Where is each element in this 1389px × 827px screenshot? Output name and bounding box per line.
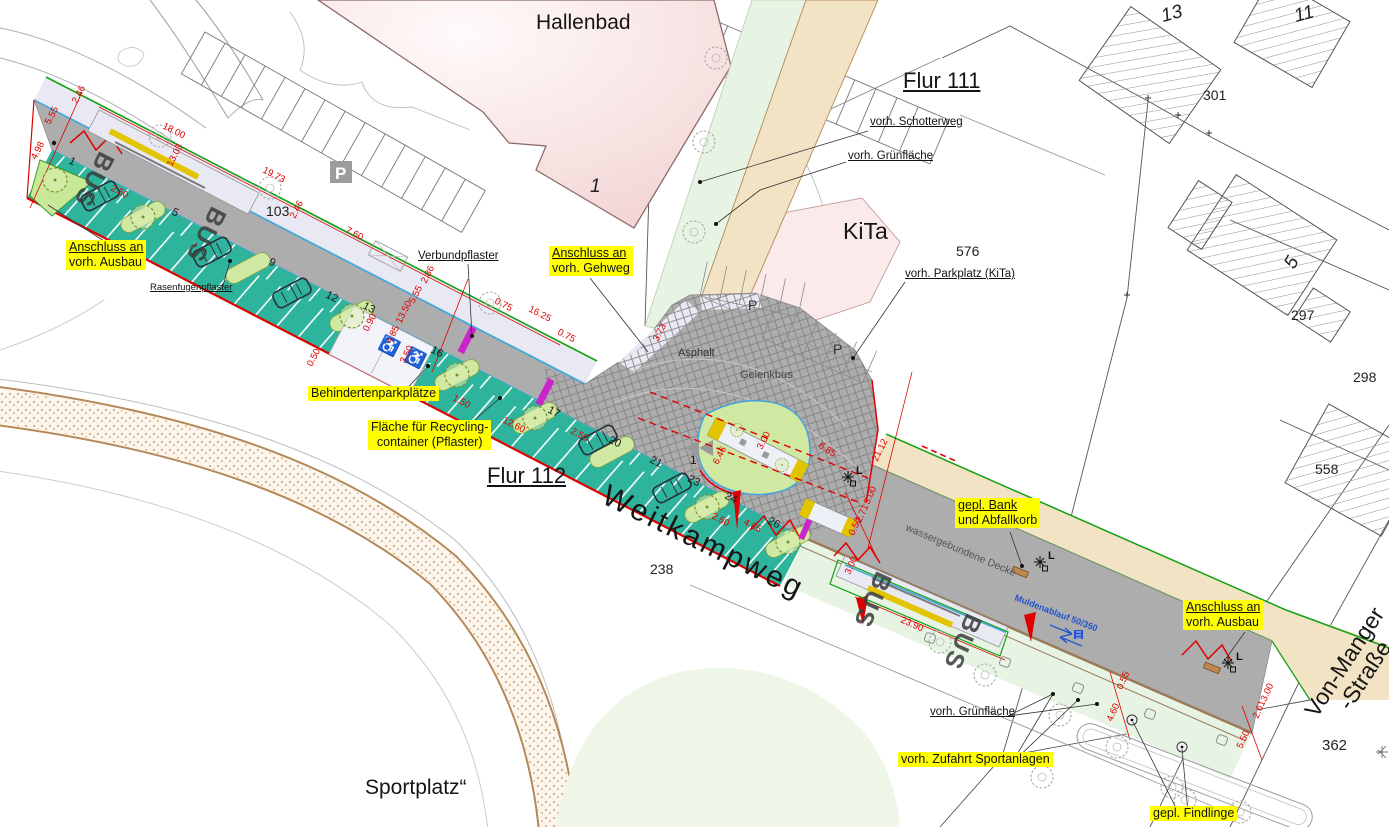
area-label-hallenbad: Hallenbad — [536, 10, 631, 35]
parcel-558: 558 — [1315, 461, 1338, 478]
parcel-103: 103 — [266, 203, 289, 220]
parking-letter: P — [833, 341, 842, 357]
site-plan: ♿ ♿ — [0, 0, 1389, 827]
area-label-kita: KiTa — [843, 218, 888, 246]
dimension: 16.25 — [527, 304, 553, 325]
callout-behindertenparkplaetze: Behindertenparkplätze — [308, 386, 439, 401]
parcel-298: 298 — [1353, 369, 1376, 386]
lamp-letter: L — [856, 465, 863, 477]
parcel-301: 301 — [1203, 87, 1226, 104]
callout-anschluss-ausbau-right: Anschluss an vorh. Ausbau — [1183, 600, 1263, 630]
parcel-297: 297 — [1291, 307, 1314, 324]
house-number: 1 — [590, 176, 601, 197]
callout-anschluss-gehweg: Anschluss an vorh. Gehweg — [549, 246, 633, 276]
island-sign-number: 1 — [690, 453, 697, 467]
note-gruenflaeche-sued: vorh. Grünfläche — [930, 706, 1015, 720]
flur-111-label: Flur 111 — [903, 68, 980, 94]
surface-label-asphalt: Asphalt — [678, 347, 715, 359]
dimension: 4.98 — [29, 140, 47, 161]
callout-anschluss-ausbau-left: Anschluss an vorh. Ausbau — [66, 240, 146, 270]
parking-sign-letter: P — [335, 164, 346, 183]
note-schotterweg: vorh. Schotterweg — [870, 116, 963, 130]
flur-112-label: Flur 112 — [487, 463, 566, 489]
surface-label-gelenkbus: Gelenkbus — [740, 369, 793, 381]
area-label-sportplatz: Sportplatz“ — [365, 775, 467, 800]
boulder-icon — [1127, 715, 1137, 725]
note-rasenfugenpflaster: Rasenfugenpflaster — [150, 282, 232, 293]
lamp-letter: L — [1236, 651, 1243, 663]
house-number: 13 — [1159, 1, 1185, 27]
hatched-houses — [1079, 0, 1389, 536]
plan-drawing: ♿ ♿ — [0, 0, 1389, 827]
lamp-letter: L — [1048, 550, 1055, 562]
callout-bank-abfallkorb: gepl. Bank und Abfallkorb — [955, 498, 1040, 528]
parcel-362: 362 — [1322, 737, 1347, 755]
callout-findlinge: gepl. Findlinge — [1150, 806, 1237, 821]
parcel-238: 238 — [650, 561, 673, 578]
callout-recycling: Fläche für Recycling- container (Pflaste… — [368, 420, 491, 450]
callout-zufahrt-sportanlagen: vorh. Zufahrt Sportanlagen — [898, 752, 1053, 767]
note-parkplatz-kita: vorh. Parkplatz (KiTa) — [905, 268, 1015, 282]
parcel-576: 576 — [956, 243, 979, 260]
note-verbundpflaster: Verbundpflaster — [418, 250, 499, 264]
dimension: 19.73 — [261, 165, 287, 186]
note-gruenflaeche-nord: vorh. Grünfläche — [848, 150, 933, 164]
parking-letter: P — [748, 297, 757, 313]
